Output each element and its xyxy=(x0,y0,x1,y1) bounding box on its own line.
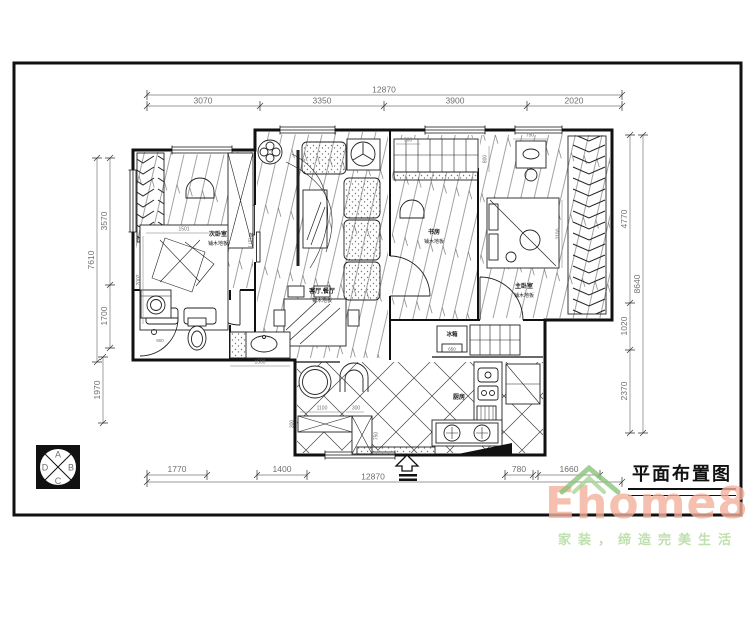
master-floor: 铺木地板 xyxy=(514,292,534,299)
elevation-c: C xyxy=(55,476,62,486)
dim-top: 12870 3070 3350 3900 2020 xyxy=(144,85,625,112)
elevation-a: A xyxy=(55,450,61,460)
elevation-symbol: A B C D xyxy=(36,445,80,489)
dim-left: 7610 3570 1700 1970 xyxy=(86,155,115,426)
study-floor: 铺木地板 xyxy=(424,238,444,245)
fridge-label: 冰箱 xyxy=(446,330,458,338)
bedroom2-label: 次卧室 xyxy=(209,230,227,238)
svg-text:12870: 12870 xyxy=(372,85,396,95)
svg-text:4770: 4770 xyxy=(619,209,629,228)
floor-plan-sheet: 次卧室 铺木地板 客厅,餐厅 铺木地板 书房 铺木地板 主卧室 铺木地板 厨房 … xyxy=(0,0,756,630)
svg-text:1100: 1100 xyxy=(317,406,328,412)
living-label: 客厅,餐厅 xyxy=(308,287,335,295)
svg-text:1500: 1500 xyxy=(254,360,265,366)
sliding-door-label: 推拉门 xyxy=(247,232,254,247)
svg-text:800: 800 xyxy=(483,155,489,164)
svg-text:12870: 12870 xyxy=(361,472,385,482)
svg-text:8640: 8640 xyxy=(632,274,642,293)
kitchen-label: 厨房 xyxy=(453,393,465,401)
svg-text:1700: 1700 xyxy=(99,306,109,325)
svg-text:3350: 3350 xyxy=(313,96,332,106)
svg-text:1100: 1100 xyxy=(556,228,562,239)
study-label: 书房 xyxy=(428,228,440,236)
svg-text:7610: 7610 xyxy=(86,250,96,269)
svg-text:750: 750 xyxy=(526,133,535,139)
fridge-size: 650 xyxy=(448,347,456,352)
svg-text:3900: 3900 xyxy=(446,96,465,106)
svg-text:2370: 2370 xyxy=(619,381,629,400)
entry-arrow-icon xyxy=(396,455,418,481)
svg-text:300: 300 xyxy=(290,420,296,429)
svg-text:1020: 1020 xyxy=(619,316,629,335)
master-label: 主卧室 xyxy=(515,282,533,290)
brand-slogan: 家装，缔造完美生活 xyxy=(558,529,738,548)
svg-text:1770: 1770 xyxy=(168,464,187,474)
dim-right: 4770 1020 2370 8640 xyxy=(619,132,648,436)
svg-text:1501: 1501 xyxy=(178,227,189,233)
svg-text:2020: 2020 xyxy=(565,96,584,106)
bedroom2-floor: 铺木地板 xyxy=(208,240,228,247)
svg-text:1400: 1400 xyxy=(273,464,292,474)
living-floor: 铺木地板 xyxy=(312,297,332,304)
svg-text:1970: 1970 xyxy=(92,380,102,399)
svg-text:900: 900 xyxy=(156,338,164,343)
elevation-d: D xyxy=(42,463,49,473)
svg-text:500: 500 xyxy=(404,138,413,144)
svg-text:300: 300 xyxy=(352,406,361,412)
svg-text:750: 750 xyxy=(374,432,380,441)
brand-roof-icon xyxy=(556,462,626,496)
elevation-b: B xyxy=(68,463,74,473)
svg-text:780: 780 xyxy=(512,464,526,474)
svg-text:3070: 3070 xyxy=(194,96,213,106)
svg-text:3570: 3570 xyxy=(99,211,109,230)
svg-text:2002: 2002 xyxy=(136,274,142,285)
